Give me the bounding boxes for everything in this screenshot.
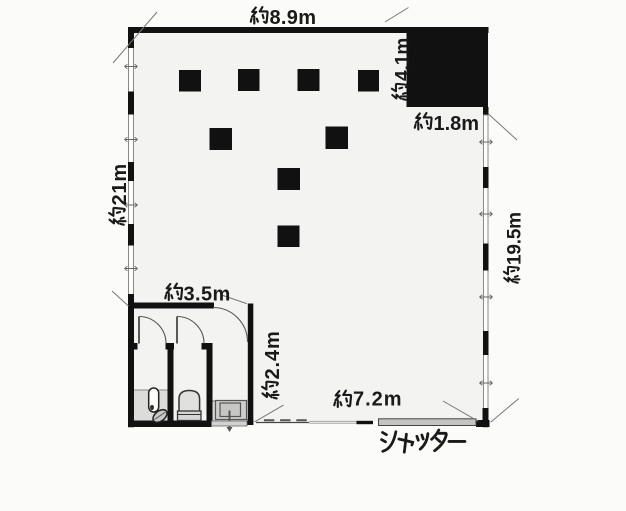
svg-text:4.1m: 4.1m <box>393 38 414 81</box>
svg-text:3.5m: 3.5m <box>184 284 231 306</box>
svg-text:8.9m: 8.9m <box>270 7 317 29</box>
svg-text:1.8m: 1.8m <box>434 113 480 135</box>
svg-text:7.2m: 7.2m <box>353 389 403 411</box>
svg-text:21m: 21m <box>109 163 131 205</box>
svg-text:19.5m: 19.5m <box>505 212 526 265</box>
svg-text:2.4m: 2.4m <box>262 330 284 379</box>
